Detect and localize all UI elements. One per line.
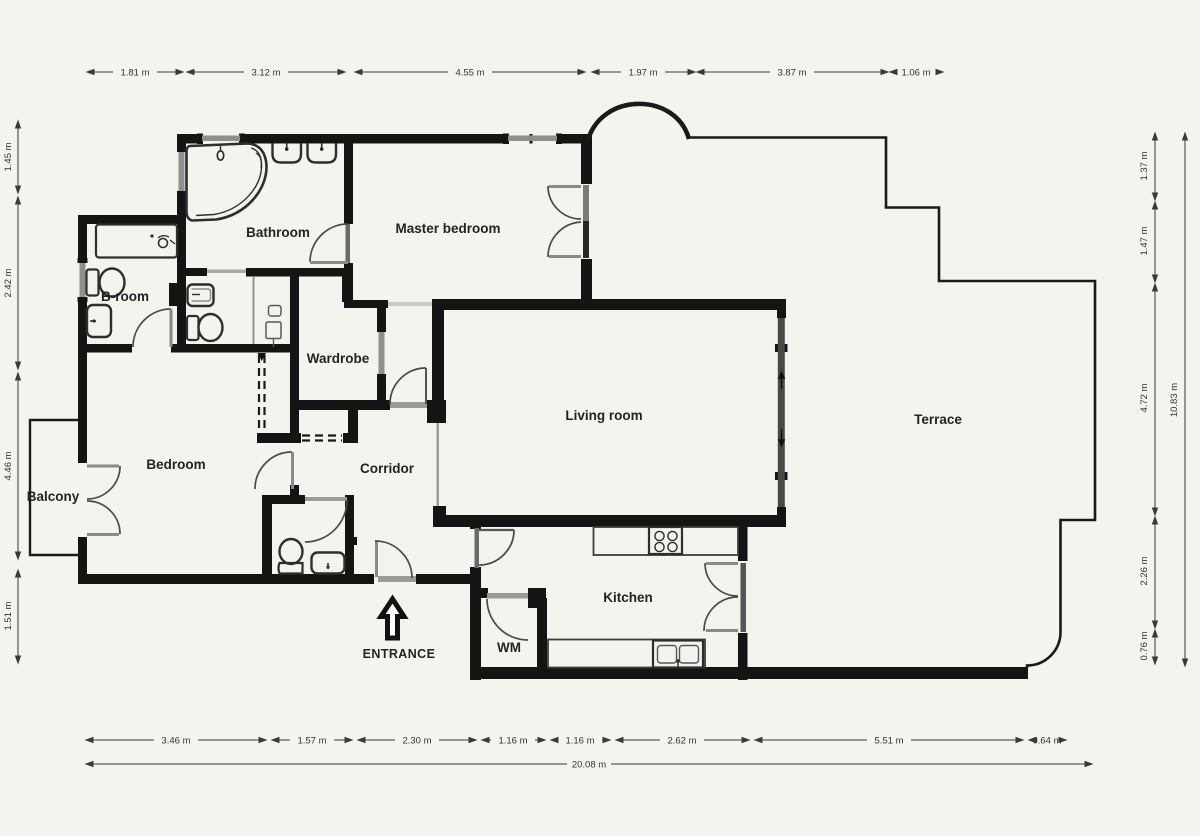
svg-text:20.08 m: 20.08 m <box>572 760 606 771</box>
svg-text:WM: WM <box>497 640 521 655</box>
svg-text:1.45 m: 1.45 m <box>3 142 14 171</box>
svg-text:Corridor: Corridor <box>360 461 415 476</box>
svg-text:Balcony: Balcony <box>27 489 80 504</box>
svg-text:2.42 m: 2.42 m <box>3 268 14 297</box>
svg-text:3.87 m: 3.87 m <box>777 68 806 79</box>
svg-text:4.72 m: 4.72 m <box>1139 383 1150 412</box>
svg-text:1.16 m: 1.16 m <box>498 736 527 747</box>
svg-text:4.46 m: 4.46 m <box>3 451 14 480</box>
svg-text:10.83 m: 10.83 m <box>1169 383 1180 417</box>
svg-text:Bedroom: Bedroom <box>146 457 205 472</box>
svg-text:1.37 m: 1.37 m <box>1139 151 1150 180</box>
svg-text:2.30 m: 2.30 m <box>402 736 431 747</box>
svg-text:1.97 m: 1.97 m <box>628 68 657 79</box>
svg-text:1.47 m: 1.47 m <box>1139 226 1150 255</box>
svg-text:Terrace: Terrace <box>914 412 962 427</box>
svg-text:5.51 m: 5.51 m <box>874 736 903 747</box>
svg-text:Kitchen: Kitchen <box>603 590 653 605</box>
svg-text:0.76 m: 0.76 m <box>1139 631 1150 660</box>
svg-text:Bathroom: Bathroom <box>246 225 310 240</box>
svg-text:B-room: B-room <box>101 289 149 304</box>
svg-text:3.12 m: 3.12 m <box>251 68 280 79</box>
svg-text:Master bedroom: Master bedroom <box>395 221 500 236</box>
svg-text:4.55 m: 4.55 m <box>455 68 484 79</box>
svg-text:2.62 m: 2.62 m <box>667 736 696 747</box>
svg-text:2.26 m: 2.26 m <box>1139 556 1150 585</box>
svg-text:3.46 m: 3.46 m <box>161 736 190 747</box>
svg-text:1.81 m: 1.81 m <box>120 68 149 79</box>
svg-text:ENTRANCE: ENTRANCE <box>363 647 436 661</box>
svg-text:1.16 m: 1.16 m <box>565 736 594 747</box>
svg-text:Wardrobe: Wardrobe <box>307 351 370 366</box>
svg-text:1.57 m: 1.57 m <box>297 736 326 747</box>
svg-text:0.64 m: 0.64 m <box>1032 736 1061 747</box>
svg-text:Living room: Living room <box>565 408 642 423</box>
svg-text:1.06 m: 1.06 m <box>901 68 930 79</box>
svg-text:1.51 m: 1.51 m <box>3 601 14 630</box>
